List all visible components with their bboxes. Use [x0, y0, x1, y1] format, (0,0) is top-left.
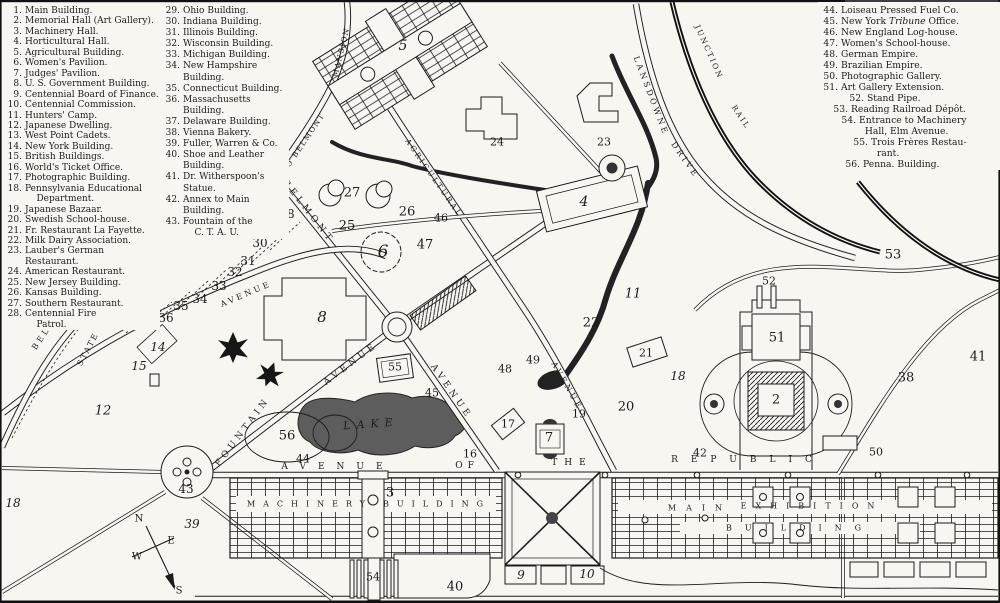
legend-item-number: 27. — [4, 299, 25, 309]
legend-item: 1. Main Building. — [4, 6, 160, 16]
legend-item-number: 26. — [4, 288, 25, 298]
legend-item-text: Fr. Restaurant La Fayette. — [25, 226, 145, 236]
legend-item-text: Fuller, Warren & Co. — [183, 139, 277, 150]
legend-item-number: 31. — [162, 28, 183, 39]
legend-item-number: 33. — [162, 50, 183, 61]
legend-item-text: British Buildings. — [25, 152, 104, 162]
legend-item: 38. Vienna Bakery. — [162, 128, 289, 139]
annex-building — [410, 276, 476, 330]
legend-item-text: Penna. Building. — [863, 159, 939, 170]
legend-item-number: 5. — [4, 48, 25, 58]
legend-item-text: Ohio Building. — [183, 6, 249, 17]
legend-item-text: Illinois Building. — [183, 28, 258, 39]
legend-item-text: Reading Railroad Dépôt. — [851, 104, 966, 115]
legend-item-text: West Point Cadets. — [25, 131, 111, 141]
plot-new-york — [137, 324, 177, 363]
legend-item-number: 24. — [4, 267, 25, 277]
legend-item: 6. Women's Pavilion. — [4, 58, 160, 68]
map-border-top — [0, 0, 845, 2]
legend-item-text: U. S. Government Building. — [25, 79, 150, 89]
legend-item-number: 8. — [4, 79, 25, 89]
legend-item: 48. German Empire. — [820, 49, 1000, 60]
legend-item-text: Shoe and Leather Building. — [183, 150, 289, 172]
legend-item: 12. Japanese Dwelling. — [4, 121, 160, 131]
legend-item: 41. Dr. Witherspoon's Statue. — [162, 172, 289, 194]
legend-item: 2. Memorial Hall (Art Gallery). — [4, 16, 160, 26]
legend-item-text: Fountain of the C. T. A. U. — [183, 217, 253, 239]
legend-item: 25. New Jersey Building. — [4, 278, 160, 288]
legend-item-number: 55. — [850, 137, 871, 159]
building-american-restaurant — [466, 97, 517, 139]
legend-item-number: 23. — [4, 246, 25, 267]
legend-item: 28. Centennial Fire Patrol. — [4, 309, 160, 330]
legend-item-text: Centennial Fire Patrol. — [25, 309, 96, 330]
legend-item-text: Dr. Witherspoon's Statue. — [183, 172, 289, 194]
legend-item: 7. Judges' Pavilion. — [4, 69, 160, 79]
legend-item-text: Machinery Hall. — [25, 27, 99, 37]
legend-item-text: American Restaurant. — [25, 267, 125, 277]
legend-item-text: Delaware Building. — [183, 117, 271, 128]
legend-item-text: New York Tribune Office. — [841, 16, 959, 27]
legend-item: 42. Annex to Main Building. — [162, 195, 289, 217]
legend-item-number: 38. — [162, 128, 183, 139]
building-memorial-hall — [700, 286, 857, 470]
building-55-box — [376, 354, 413, 382]
legend-item: 37. Delaware Building. — [162, 117, 289, 128]
legend-item: 47. Women's School-house. — [820, 38, 1000, 49]
legend-item-number: 3. — [4, 27, 25, 37]
reading-railroad — [858, 182, 1000, 280]
legend-item-text: Brazilian Empire. — [841, 60, 923, 71]
legend-item: 43. Fountain of the C. T. A. U. — [162, 217, 289, 239]
legend-item-text: Art Gallery Extension. — [841, 82, 944, 93]
legend-item-number: 22. — [4, 236, 25, 246]
tree-star-2 — [254, 358, 286, 391]
legend-item-text: Swedish School-house. — [25, 215, 130, 225]
legend-item-number: 11. — [4, 111, 25, 121]
legend-item-text: Hunters' Camp. — [25, 111, 97, 121]
building-agricultural — [309, 0, 490, 134]
legend-item: 24. American Restaurant. — [4, 267, 160, 277]
legend-item-number: 49. — [820, 60, 841, 71]
legend-item-number: 51. — [820, 82, 841, 93]
legend-item: 16. World's Ticket Office. — [4, 163, 160, 173]
legend-item-text: Japanese Bazaar. — [25, 205, 103, 215]
fountain-ctau — [161, 446, 213, 498]
legend-item-number: 52. — [846, 93, 867, 104]
legend-item-number: 46. — [820, 27, 841, 38]
legend-item-text: Indiana Building. — [183, 17, 262, 28]
legend-item: 50. Photographic Gallery. — [820, 71, 1000, 82]
legend-item: 14. New York Building. — [4, 142, 160, 152]
legend-item: 46. New England Log-house. — [820, 27, 1000, 38]
legend-item-text: Memorial Hall (Art Gallery). — [25, 16, 154, 26]
legend-item-text: Milk Dairy Association. — [25, 236, 131, 246]
legend-item-text: Kansas Building. — [25, 288, 102, 298]
legend-item: 40. Shoe and Leather Building. — [162, 150, 289, 172]
legend-item-text: Michigan Building. — [183, 50, 270, 61]
legend-item: 34. New Hampshire Building. — [162, 61, 289, 83]
legend-item-text: New Hampshire Building. — [183, 61, 289, 83]
legend-item: 35. Connecticut Building. — [162, 84, 289, 95]
legend-item-text: Photographic Building. — [25, 173, 130, 183]
building-judges-pavilion — [536, 419, 564, 459]
legend-item-text: Photographic Gallery. — [841, 71, 942, 82]
legend-item-number: 43. — [162, 217, 183, 239]
legend-item-number: 48. — [820, 49, 841, 60]
building-17-box — [491, 408, 524, 439]
legend-item: 52. Stand Pipe. — [820, 93, 1000, 104]
legend-column-1: 1. Main Building. 2. Memorial Hall (Art … — [2, 3, 160, 330]
legend-item-number: 6. — [4, 58, 25, 68]
legend-item: 39. Fuller, Warren & Co. — [162, 139, 289, 150]
legend-item-text: Main Building. — [25, 6, 92, 16]
legend-item-number: 41. — [162, 172, 183, 194]
legend-item: 45. New York Tribune Office. — [820, 16, 1000, 27]
building-photographic-gallery — [823, 436, 857, 450]
legend-item-number: 21. — [4, 226, 25, 236]
legend-item: 21. Fr. Restaurant La Fayette. — [4, 226, 160, 236]
legend-item-number: 10. — [4, 100, 25, 110]
legend-column-3: 44. Loiseau Pressed Fuel Co. 45. New Yor… — [818, 2, 1000, 170]
legend-item-number: 47. — [820, 38, 841, 49]
legend-item-number: 56. — [842, 159, 863, 170]
legend-item-number: 15. — [4, 152, 25, 162]
building-horticultural-hall — [536, 166, 647, 232]
plaza-x — [505, 472, 600, 565]
legend-item: 53. Reading Railroad Dépôt. — [820, 104, 1000, 115]
legend-item: 56. Penna. Building. — [820, 159, 1000, 170]
legend-item-text: World's Ticket Office. — [25, 163, 123, 173]
legend-item: 11. Hunters' Camp. — [4, 111, 160, 121]
legend-item-text: Centennial Commission. — [25, 100, 136, 110]
legend-item-text: Connecticut Building. — [183, 84, 282, 95]
legend-item-number: 2. — [4, 16, 25, 26]
legend-item-number: 35. — [162, 84, 183, 95]
legend-item-number: 18. — [4, 184, 25, 205]
legend-item-number: 42. — [162, 195, 183, 217]
legend-item: 30. Indiana Building. — [162, 17, 289, 28]
legend-item: 33. Michigan Building. — [162, 50, 289, 61]
legend-item-text: Agricultural Building. — [25, 48, 124, 58]
legend-item-number: 30. — [162, 17, 183, 28]
building-us-government — [264, 278, 366, 360]
legend-item: 54. Entrance to Machinery Hall, Elm Aven… — [820, 115, 1000, 137]
legend-item: 17. Photographic Building. — [4, 173, 160, 183]
stand-pipe — [757, 286, 762, 308]
legend-item: 55. Trois Frères Restau- rant. — [820, 137, 1000, 159]
legend-item: 20. Swedish School-house. — [4, 215, 160, 225]
legend-item-number: 50. — [820, 71, 841, 82]
legend-item-number: 53. — [830, 104, 851, 115]
legend-item: 36. Massachusetts Building. — [162, 95, 289, 117]
legend-item: 3. Machinery Hall. — [4, 27, 160, 37]
roundabout-central — [382, 312, 412, 342]
building-british — [150, 374, 159, 386]
legend-item-number: 34. — [162, 61, 183, 83]
legend-item-number: 16. — [4, 163, 25, 173]
legend-item-number: 28. — [4, 309, 25, 330]
legend-item: 8. U. S. Government Building. — [4, 79, 160, 89]
building-lauber-restaurant — [577, 83, 618, 122]
legend-item-text: Lauber's German Restaurant. — [25, 246, 160, 267]
legend-item-text: Stand Pipe. — [867, 93, 921, 104]
legend-item-number: 40. — [162, 150, 183, 172]
legend-item-number: 4. — [4, 37, 25, 47]
legend-item: 22. Milk Dairy Association. — [4, 236, 160, 246]
legend-item: 27. Southern Restaurant. — [4, 299, 160, 309]
legend-item-text: Centennial Board of Finance. — [25, 90, 159, 100]
legend-item-text: Annex to Main Building. — [183, 195, 289, 217]
building-9 — [505, 566, 536, 584]
legend-column-2: 29. Ohio Building. 30. Indiana Building.… — [160, 3, 289, 239]
legend-item: 26. Kansas Building. — [4, 288, 160, 298]
legend-item: 44. Loiseau Pressed Fuel Co. — [820, 5, 1000, 16]
legend-item-text: Vienna Bakery. — [183, 128, 251, 139]
legend-item-number: 45. — [820, 16, 841, 27]
legend-item-number: 7. — [4, 69, 25, 79]
legend-item: 18. Pennsylvania Educational Department. — [4, 184, 160, 205]
legend-item: 23. Lauber's German Restaurant. — [4, 246, 160, 267]
legend-item-text: Entrance to Machinery Hall, Elm Avenue. — [859, 115, 967, 137]
legend-item-number: 19. — [4, 205, 25, 215]
building-21-box — [627, 337, 667, 367]
legend-item-text: Loiseau Pressed Fuel Co. — [841, 5, 959, 16]
legend-item: 32. Wisconsin Building. — [162, 39, 289, 50]
tree-star-1 — [218, 332, 248, 363]
legend-item: 4. Horticultural Hall. — [4, 37, 160, 47]
trees-27 — [319, 180, 392, 208]
legend-item: 49. Brazilian Empire. — [820, 60, 1000, 71]
legend-item-text: New Jersey Building. — [25, 278, 121, 288]
legend-item-number: 14. — [4, 142, 25, 152]
legend-item: 51. Art Gallery Extension. — [820, 82, 1000, 93]
legend-item: 10. Centennial Commission. — [4, 100, 160, 110]
legend-item: 13. West Point Cadets. — [4, 131, 160, 141]
building-shoe-leather — [394, 554, 490, 598]
legend-item: 29. Ohio Building. — [162, 6, 289, 17]
legend-item-text: New England Log-house. — [841, 27, 958, 38]
compass-rose — [132, 526, 175, 590]
legend-item-text: German Empire. — [841, 49, 918, 60]
legend-item-number: 54. — [838, 115, 859, 137]
legend-item-number: 37. — [162, 117, 183, 128]
legend-item-text: Southern Restaurant. — [25, 299, 124, 309]
legend-item-number: 17. — [4, 173, 25, 183]
legend-item-number: 25. — [4, 278, 25, 288]
legend-item-number: 12. — [4, 121, 25, 131]
legend-item-text: Pennsylvania Educational Department. — [25, 184, 142, 205]
legend-item-number: 32. — [162, 39, 183, 50]
legend-item-number: 36. — [162, 95, 183, 117]
legend-item: 19. Japanese Bazaar. — [4, 205, 160, 215]
legend-item-number: 9. — [4, 90, 25, 100]
legend-item-number: 13. — [4, 131, 25, 141]
building-10 — [571, 566, 604, 584]
legend-item: 31. Illinois Building. — [162, 28, 289, 39]
machinery-entrance-54 — [350, 558, 398, 600]
centennial-exhibition-map: MACHINERYBUILDINGMAINEXHIBITIONBUILDINGA… — [0, 0, 1000, 603]
legend-item-number: 20. — [4, 215, 25, 225]
legend-item-text: Women's Pavilion. — [25, 58, 107, 68]
legend-item-text: Trois Frères Restau- rant. — [871, 137, 967, 159]
legend-item-text: Judges' Pavilion. — [25, 69, 100, 79]
legend-item-text: Japanese Dwelling. — [25, 121, 112, 131]
legend-item-text: Wisconsin Building. — [183, 39, 273, 50]
legend-item: 9. Centennial Board of Finance. — [4, 90, 160, 100]
legend-item-text: Women's School-house. — [841, 38, 950, 49]
legend-item: 15. British Buildings. — [4, 152, 160, 162]
legend-item-text: New York Building. — [25, 142, 113, 152]
legend-item-number: 29. — [162, 6, 183, 17]
legend-item-number: 44. — [820, 5, 841, 16]
legend-item-text: Massachusetts Building. — [183, 95, 289, 117]
legend-item-number: 1. — [4, 6, 25, 16]
legend-item-number: 39. — [162, 139, 183, 150]
legend-item-text: Horticultural Hall. — [25, 37, 109, 47]
legend-item: 5. Agricultural Building. — [4, 48, 160, 58]
